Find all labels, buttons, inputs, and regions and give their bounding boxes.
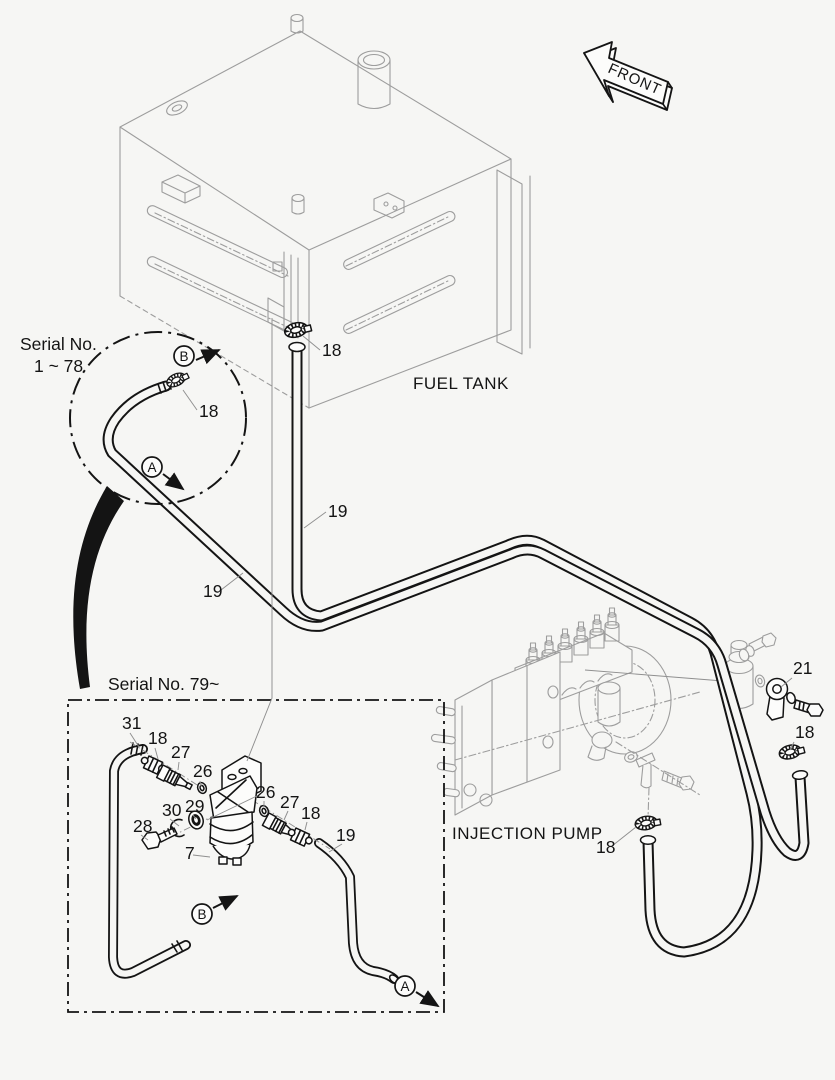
callout-29-seal: 29 bbox=[185, 796, 204, 816]
serial-early-label-line1: Serial No. bbox=[20, 334, 97, 354]
callout-30-clip: 30 bbox=[162, 800, 182, 820]
callout-18-pump-clamp: 18 bbox=[596, 837, 615, 857]
callout-19-hose-box: 19 bbox=[336, 825, 355, 845]
callout-18-fitting-right: 18 bbox=[301, 803, 320, 823]
hose-end-pump bbox=[641, 836, 656, 844]
callout-21-eye-joint: 21 bbox=[793, 658, 812, 678]
callout-18-tank-clamp: 18 bbox=[322, 340, 341, 360]
diagram-canvas: FRONT FUEL TANK INJECTION PUMP Serial No… bbox=[0, 0, 835, 1080]
callout-18-fitting-left: 18 bbox=[148, 728, 167, 748]
fuel-tank-label: FUEL TANK bbox=[413, 374, 509, 393]
serial-early-label-line2: 1 ~ 78 bbox=[34, 356, 83, 376]
hose-end-tank bbox=[289, 343, 305, 352]
callout-7-water-separator: 7 bbox=[185, 843, 195, 863]
callout-28-bolt: 28 bbox=[133, 816, 152, 836]
serial-late-label: Serial No. 79~ bbox=[108, 674, 219, 694]
callout-26-oring-right: 26 bbox=[256, 782, 275, 802]
callout-19-hose-diagonal: 19 bbox=[203, 581, 222, 601]
callout-27-nipple-left: 27 bbox=[171, 742, 190, 762]
parts-diagram-page: FRONT FUEL TANK INJECTION PUMP Serial No… bbox=[0, 0, 835, 1080]
callout-31-hose: 31 bbox=[122, 713, 141, 733]
callout-19-hose-vertical: 19 bbox=[328, 501, 347, 521]
direction-letter-box-a: A bbox=[400, 979, 409, 994]
callout-26-oring-left: 26 bbox=[193, 761, 212, 781]
direction-letter-circle-a: A bbox=[147, 460, 156, 475]
direction-letter-circle-b: B bbox=[179, 349, 188, 364]
injection-pump-label: INJECTION PUMP bbox=[452, 824, 603, 843]
callout-18-return-clamp: 18 bbox=[795, 722, 814, 742]
direction-letter-box-b: B bbox=[197, 907, 206, 922]
callout-18-circle-clamp: 18 bbox=[199, 401, 218, 421]
page-background bbox=[0, 0, 835, 1080]
callout-27-nipple-right: 27 bbox=[280, 792, 299, 812]
